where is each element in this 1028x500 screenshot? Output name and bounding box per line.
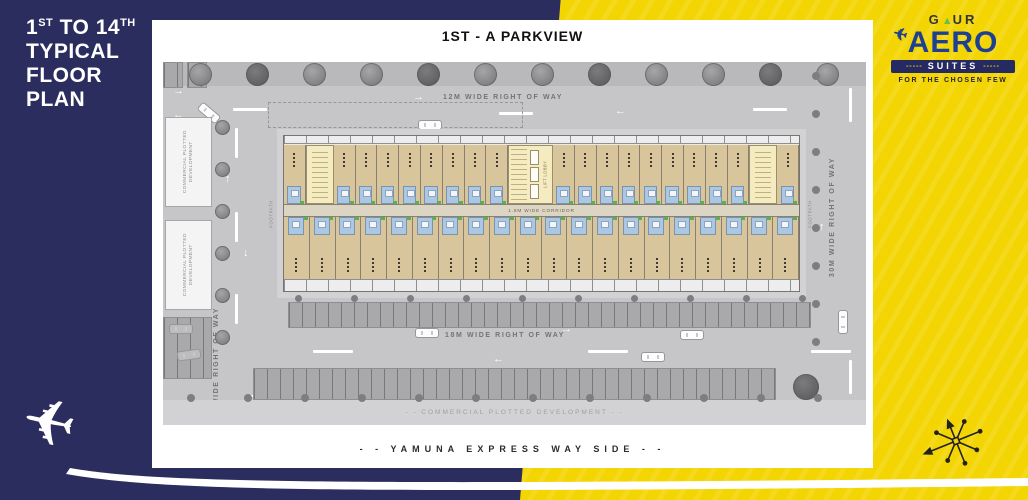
unit-cell [619, 217, 645, 279]
bathroom [700, 217, 716, 235]
tree-dot-icon [301, 394, 309, 402]
bathroom [403, 186, 416, 204]
brand-aero: ✈AERO [908, 28, 999, 58]
unit-cell [413, 217, 439, 279]
unit-cell [421, 145, 443, 204]
tree-dot-icon [415, 394, 423, 402]
door-marker [432, 217, 436, 220]
unit-cell [284, 145, 306, 204]
unit-cell [361, 217, 387, 279]
road-centerline [233, 108, 267, 111]
door-marker [767, 217, 771, 220]
lift-box [530, 184, 539, 199]
bathroom [781, 186, 794, 204]
tree-dot-icon [187, 394, 195, 402]
bathroom [314, 217, 330, 235]
building-block-a: LIFT LOBBY 1.8M WIDE CORRIDOR [283, 135, 800, 292]
bathroom [545, 217, 561, 235]
bathroom [337, 186, 350, 204]
stair-core [306, 145, 334, 204]
bathroom [709, 186, 722, 204]
door-marker [793, 217, 797, 220]
tree-dot-icon [814, 394, 822, 402]
unit-cell [399, 145, 421, 204]
lift-core: LIFT LOBBY [508, 145, 553, 204]
tree-icon [246, 63, 269, 86]
unit-cell [670, 217, 696, 279]
unit-cell [490, 217, 516, 279]
corridor: 1.8M WIDE CORRIDOR [284, 204, 799, 217]
door-marker [407, 217, 411, 220]
bathroom [578, 186, 591, 204]
bathroom [571, 217, 587, 235]
bathroom [468, 186, 481, 204]
tree-dot-icon [643, 394, 651, 402]
commercial-plot-label: COMMERCIAL PLOTTED DEVELOPMENT [182, 230, 194, 300]
unit-cell [387, 217, 413, 279]
tree-icon [417, 63, 440, 86]
door-marker [613, 217, 617, 220]
unit-cell [597, 145, 619, 204]
unit-cell [773, 217, 799, 279]
road-centerline [588, 350, 628, 353]
unit-cell [722, 217, 748, 279]
tree-dot-icon [244, 394, 252, 402]
tree-icon [702, 63, 725, 86]
road-centerline [235, 212, 238, 242]
dash-right: ----- [983, 63, 1000, 70]
road-centerline [811, 350, 851, 353]
car-icon [838, 310, 848, 334]
tree-dot-icon [812, 224, 820, 232]
brand-logo: G▲UR ✈AERO ----- SUITES ----- FOR THE CH… [888, 12, 1018, 84]
page-title-line1: 1ST TO 14TH [26, 16, 136, 40]
balcony-strip-bottom [284, 279, 799, 291]
unit-cell [553, 145, 575, 204]
bathroom [644, 186, 657, 204]
brand-gaur: G▲UR [888, 12, 1018, 27]
bathroom [600, 186, 613, 204]
unit-cell [439, 217, 465, 279]
unit-cell [377, 145, 399, 204]
bathroom [597, 217, 613, 235]
car-icon [680, 330, 704, 340]
tree-icon [759, 63, 782, 86]
unit-row-top: LIFT LOBBY [284, 145, 799, 204]
tree-dot-icon [351, 295, 358, 302]
lift-lobby-label: LIFT LOBBY [540, 146, 552, 203]
commercial-plot: COMMERCIAL PLOTTED DEVELOPMENT [165, 220, 212, 310]
road-label-bottom: 18M WIDE RIGHT OF WAY [445, 332, 565, 339]
unit-cell [684, 145, 706, 204]
tree-icon [215, 204, 230, 219]
logo-plane-icon: ✈ [890, 24, 909, 44]
bathroom [391, 217, 407, 235]
tree-icon [474, 63, 497, 86]
tree-dot-icon [407, 295, 414, 302]
door-marker [458, 217, 462, 220]
tree-dot-icon [631, 295, 638, 302]
parking-block [163, 62, 183, 88]
door-marker [716, 217, 720, 220]
car-icon [169, 324, 193, 334]
unit-cell [567, 217, 593, 279]
unit-cell [464, 217, 490, 279]
tree-dot-icon [575, 295, 582, 302]
bathroom [365, 217, 381, 235]
unit-cell [645, 217, 671, 279]
tree-dot-icon [743, 295, 750, 302]
page-title-line4: PLAN [26, 88, 136, 112]
tree-icon [588, 63, 611, 86]
tree-icon [360, 63, 383, 86]
tree-dot-icon [586, 394, 594, 402]
arrow-left-icon: ← [493, 354, 504, 365]
door-marker [355, 217, 359, 220]
unit-cell [640, 145, 662, 204]
door-marker [741, 217, 745, 220]
unit-cell [696, 217, 722, 279]
unit-cell [443, 145, 465, 204]
bathroom [424, 186, 437, 204]
bathroom [674, 217, 690, 235]
road-centerline [753, 108, 787, 111]
brand-suites: SUITES [928, 62, 979, 71]
tree-dot-icon [799, 295, 806, 302]
bathroom [622, 186, 635, 204]
unit-cell [575, 145, 597, 204]
tree-dot-icon [700, 394, 708, 402]
bathroom [339, 217, 355, 235]
tree-dot-icon [358, 394, 366, 402]
unit-cell [728, 145, 750, 204]
page-title-line3: FLOOR [26, 64, 136, 88]
bathroom [687, 186, 700, 204]
door-marker [304, 217, 308, 220]
car-icon [418, 120, 442, 130]
unit-cell [334, 145, 356, 204]
commercial-plot-label: COMMERCIAL PLOTTED DEVELOPMENT [182, 127, 194, 197]
tree-icon [303, 63, 326, 86]
tree-icon [215, 246, 230, 261]
footpath-left: FOOTPATH [267, 135, 277, 292]
floor-plan-panel: 1ST - A PARKVIEW 12M WIDE RIGHT OF WAY →… [152, 20, 873, 468]
bathroom [442, 217, 458, 235]
tree-dot-icon [463, 295, 470, 302]
compass-icon [916, 402, 994, 480]
tree-dot-icon [472, 394, 480, 402]
road-centerline [313, 350, 353, 353]
tree-dot-icon [529, 394, 537, 402]
road-label-right: 30M WIDE RIGHT OF WAY [829, 157, 836, 277]
bathroom [726, 217, 742, 235]
bathroom [556, 186, 569, 204]
arrow-left-icon: ← [615, 106, 626, 117]
unit-cell [284, 217, 310, 279]
door-marker [381, 217, 385, 220]
unit-cell [310, 217, 336, 279]
unit-cell [465, 145, 487, 204]
commercial-strip-label: - - COMMERCIAL PLOTTED DEVELOPMENT - - [163, 409, 866, 416]
bathroom [520, 217, 536, 235]
page-title: 1ST TO 14TH TYPICAL FLOOR PLAN [26, 16, 136, 112]
lift-box [530, 167, 539, 182]
unit-cell [748, 217, 774, 279]
unit-cell [662, 145, 684, 204]
tree-dot-icon [295, 295, 302, 302]
road-dashed-outline [268, 102, 523, 128]
tree-dot-icon [812, 110, 820, 118]
unit-cell [336, 217, 362, 279]
airplane-icon: ✈ [14, 390, 164, 480]
tree-dot-icon [812, 300, 820, 308]
site-plan: 12M WIDE RIGHT OF WAY → ← → ← 9M WIDE RI… [163, 62, 866, 425]
lift-box [530, 150, 539, 165]
road-centerline [849, 88, 852, 122]
door-marker [535, 217, 539, 220]
bathroom [648, 217, 664, 235]
door-marker [587, 217, 591, 220]
tree-dot-icon [812, 338, 820, 346]
tree-icon [215, 120, 230, 135]
commercial-plot: COMMERCIAL PLOTTED DEVELOPMENT [165, 117, 212, 207]
tree-dot-icon [757, 394, 765, 402]
brand-tagline: FOR THE CHOSEN FEW [888, 77, 1018, 84]
tree-dot-icon [812, 72, 820, 80]
dash-left: ----- [906, 63, 923, 70]
road-centerline [235, 294, 238, 324]
stair-core [749, 145, 777, 204]
bathroom [623, 217, 639, 235]
unit-cell [486, 145, 508, 204]
bathroom [751, 217, 767, 235]
unit-cell [516, 217, 542, 279]
tree-icon [215, 330, 230, 345]
bathroom [381, 186, 394, 204]
car-icon [641, 352, 665, 362]
bathroom [288, 217, 304, 235]
tree-icon [215, 288, 230, 303]
door-marker [329, 217, 333, 220]
bathroom [359, 186, 372, 204]
car-icon [415, 328, 439, 338]
arrow-down-icon: ↓ [243, 248, 249, 259]
bathroom [490, 186, 503, 204]
unit-row-bottom [284, 217, 799, 279]
bathroom [446, 186, 459, 204]
core-stair [511, 149, 527, 200]
tree-icon [215, 162, 230, 177]
door-marker [510, 217, 514, 220]
tree-dot-icon [812, 186, 820, 194]
lift-shafts [529, 146, 540, 203]
tree-dot-icon [812, 262, 820, 270]
unit-cell [777, 145, 799, 204]
page-title-line2: TYPICAL [26, 40, 136, 64]
tree-dot-icon [812, 148, 820, 156]
unit-cell [356, 145, 378, 204]
bathroom [417, 217, 433, 235]
door-marker [690, 217, 694, 220]
brand-suites-bar: ----- SUITES ----- [891, 60, 1015, 73]
tree-icon [645, 63, 668, 86]
tree-icon [531, 63, 554, 86]
bathroom [777, 217, 793, 235]
yamuna-expressway-label: - - YAMUNA EXPRESS WAY SIDE - - [152, 444, 873, 454]
plan-title: 1ST - A PARKVIEW [152, 28, 873, 44]
bathroom [468, 217, 484, 235]
parking-row [288, 302, 811, 328]
unit-cell [619, 145, 641, 204]
bathroom [494, 217, 510, 235]
poster-canvas: 1ST TO 14TH TYPICAL FLOOR PLAN G▲UR ✈AER… [0, 0, 1028, 500]
door-marker [638, 217, 642, 220]
unit-cell [593, 217, 619, 279]
unit-cell [542, 217, 568, 279]
door-marker [484, 217, 488, 220]
road-centerline [849, 360, 852, 394]
road-label-top: 12M WIDE RIGHT OF WAY [443, 94, 563, 101]
door-marker [664, 217, 668, 220]
tree-dot-icon [687, 295, 694, 302]
bathroom [287, 186, 300, 204]
bathroom [665, 186, 678, 204]
door-marker [561, 217, 565, 220]
airplane-glyph: ✈ [16, 387, 82, 461]
tree-icon [189, 63, 212, 86]
parking-row [253, 368, 776, 400]
unit-cell [706, 145, 728, 204]
bathroom [731, 186, 744, 204]
balcony-strip-top [284, 136, 799, 144]
tree-dot-icon [519, 295, 526, 302]
road-centerline [235, 128, 238, 158]
arrow-right-icon: → [561, 324, 572, 335]
